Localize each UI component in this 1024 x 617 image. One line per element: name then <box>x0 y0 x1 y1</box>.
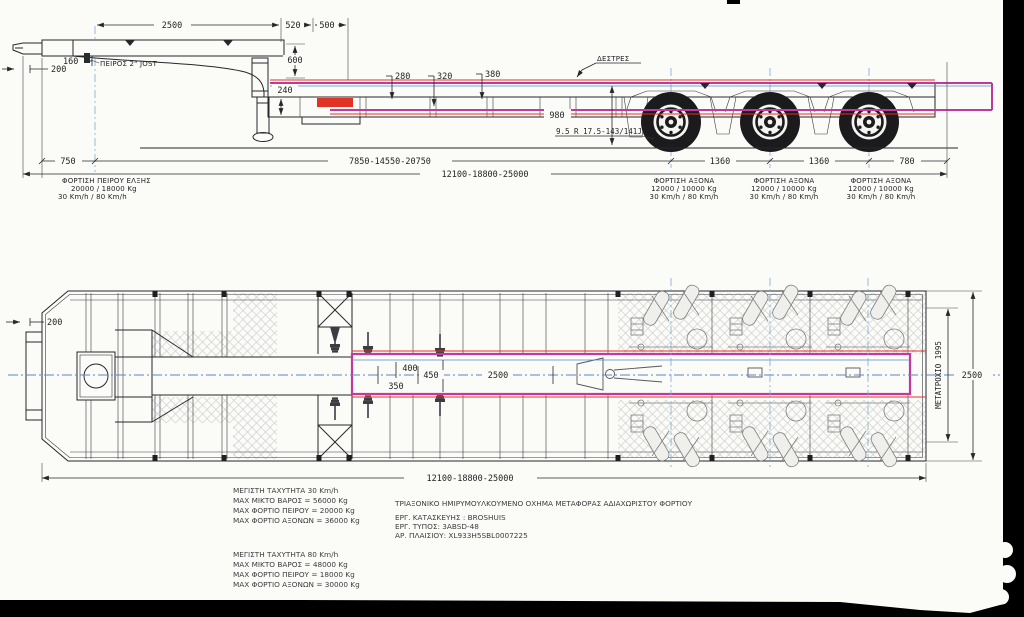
dim-axle-spacing-2: 1360 <box>809 157 829 167</box>
tire-size-label: 9.5 R 17.5-143/141J <box>556 127 642 136</box>
spec-line: ΜΕΓΙΣΤΗ ΤΑΧΥΤΗΤΑ 80 Km/h <box>233 550 338 559</box>
axle-load-block-1: ΦΟΡΤΙΣΗ ΑΞΟΝΑ 12000 / 10000 Kg 30 Km/h /… <box>650 177 719 201</box>
deck-step-dimensions: 280 320 380 <box>386 70 500 106</box>
side-view: 2500 520 500 600 240 160 200 ΠΕΙΡΟΣ 2" J… <box>2 18 992 201</box>
wheel-1 <box>641 92 701 152</box>
axle-load-title: ΦΟΡΤΙΣΗ ΑΞΟΝΑ <box>654 177 715 185</box>
dim-320: 320 <box>437 72 452 82</box>
spec-line: MAX ΦΟΡΤΙΟ ΠΕΙΡΟΥ = 18000 Kg <box>233 570 355 579</box>
axle-load-block-3: ΦΟΡΤΙΣΗ ΑΞΟΝΑ 12000 / 10000 Kg 30 Km/h /… <box>847 177 916 201</box>
spec-line: MAX ΦΟΡΤΙΟ ΑΞΟΝΩΝ = 36000 Kg <box>233 516 360 525</box>
axle-load-speeds: 30 Km/h / 80 Km/h <box>650 193 719 201</box>
spec-line: MAX ΜΙΚΤΟ ΒΑΡΟΣ = 56000 Kg <box>233 496 348 505</box>
lashing-label: ΔΕΣΤΡΕΣ <box>597 55 629 63</box>
front-coupling-box <box>26 332 42 420</box>
side-misc-labels: 980 9.5 R 17.5-143/141J ΔΕΣΤΡΕΣ <box>544 55 654 145</box>
dim-350: 350 <box>388 382 403 392</box>
technical-drawing-svg: 2500 520 500 600 240 160 200 ΠΕΙΡΟΣ 2" J… <box>0 0 1024 617</box>
wheel-2 <box>740 92 800 152</box>
dim-240: 240 <box>277 86 292 96</box>
vehicle-id-block: ΤΡΙΑΞΟΝΙΚΟ ΗΜΙΡΥΜΟΥΛΚΟΥΜΕΝΟ ΟΧΗΜΑ ΜΕΤΑΦΟ… <box>394 499 693 540</box>
steering-linkage <box>577 358 860 390</box>
spec-block-80kmh: ΜΕΓΙΣΤΗ ΤΑΧΥΤΗΤΑ 80 Km/h MAX ΜΙΚΤΟ ΒΑΡΟΣ… <box>233 550 360 589</box>
dim-200-side: 200 <box>51 65 66 75</box>
axle-load-values: 12000 / 10000 Kg <box>751 185 817 193</box>
spec-line: ΜΕΓΙΣΤΗ ΤΑΧΥΤΗΤΑ 30 Km/h <box>233 486 338 495</box>
support-pad <box>363 395 373 418</box>
pin-load-values: 20000 / 18000 Kg <box>71 185 137 193</box>
dim-500: 500 <box>319 21 334 31</box>
axle-load-values: 12000 / 10000 Kg <box>848 185 914 193</box>
dim-200-plan: 200 <box>47 318 62 328</box>
axle-load-title: ΦΟΡΤΙΣΗ ΑΞΟΝΑ <box>754 177 815 185</box>
axle-load-block-2: ΦΟΡΤΙΣΗ ΑΞΟΝΑ 12000 / 10000 Kg 30 Km/h /… <box>750 177 819 201</box>
dim-2500-channel: 2500 <box>488 371 508 381</box>
axle-load-speeds: 30 Km/h / 80 Km/h <box>750 193 819 201</box>
pin-load-speeds: 30 Km/h / 80 Km/h <box>58 193 127 201</box>
dim-rear-overhang: 780 <box>899 157 914 167</box>
dim-width-2500: 2500 <box>962 371 982 381</box>
dim-750: 750 <box>60 157 75 167</box>
dim-380: 380 <box>485 70 500 80</box>
deck-beam <box>268 83 935 124</box>
wheel-3 <box>839 92 899 152</box>
red-marker-block <box>317 98 353 107</box>
kingpin-label: ΠΕΙΡΟΣ 2" JOST <box>100 60 158 68</box>
dim-overall-side: 12100-18800-25000 <box>442 170 529 180</box>
dim-overall-plan: 12100-18800-25000 <box>427 474 514 484</box>
scan-edge-bottom <box>0 600 1024 617</box>
support-pad <box>330 397 340 420</box>
spec-line: MAX ΦΟΡΤΙΟ ΠΕΙΡΟΥ = 20000 Kg <box>233 506 355 515</box>
dim-980: 980 <box>549 111 564 121</box>
dim-400: 400 <box>402 364 417 374</box>
scan-edge-right <box>1003 0 1024 617</box>
axle-load-title: ΦΟΡΤΙΣΗ ΑΞΟΝΑ <box>851 177 912 185</box>
scanned-trailer-drawing: 2500 520 500 600 240 160 200 ΠΕΙΡΟΣ 2" J… <box>0 0 1024 617</box>
pin-load-block: ΦΟΡΤΙΣΗ ΠΕΙΡΟΥ ΕΛΞΗΣ 20000 / 18000 Kg 30… <box>58 177 151 201</box>
spec-block-30kmh: ΜΕΓΙΣΤΗ ΤΑΧΥΤΗΤΑ 30 Km/h MAX ΜΙΚΤΟ ΒΑΡΟΣ… <box>233 486 360 525</box>
support-pad <box>330 330 340 353</box>
wheels-side <box>641 92 899 152</box>
dim-520: 520 <box>285 21 300 31</box>
spec-line: MAX ΜΙΚΤΟ ΒΑΡΟΣ = 48000 Kg <box>233 560 348 569</box>
dim-pin-to-axle: 7850-14550-20750 <box>349 157 431 167</box>
dim-280: 280 <box>395 72 410 82</box>
axle-load-speeds: 30 Km/h / 80 Km/h <box>847 193 916 201</box>
spec-line: MAX ΦΟΡΤΙΟ ΑΞΟΝΩΝ = 30000 Kg <box>233 580 360 589</box>
dim-600: 600 <box>287 56 302 66</box>
type: ΕΡΓ. ΤΥΠΟΣ: 3ABSD-48 <box>395 522 479 531</box>
plan-view: 200 400 450 350 2500 12100-18800-25000 Μ… <box>6 278 1000 484</box>
dim-2500: 2500 <box>162 21 182 31</box>
kingpin-plate <box>77 352 115 400</box>
kingpin-2in <box>84 53 90 63</box>
dim-track: ΜΕΤΑΤΡΟΧΙΟ 1995 <box>934 341 943 409</box>
landing-leg <box>253 97 273 142</box>
manufacturer: ΕΡΓ. ΚΑΤΑΣΚΕΥΗΣ : BROSHUIS <box>395 513 506 522</box>
chassis-number: ΑΡ. ΠΛΑΙΣΙΟΥ: XL933H5SBL0007225 <box>395 531 528 540</box>
vehicle-description: ΤΡΙΑΞΟΝΙΚΟ ΗΜΙΡΥΜΟΥΛΚΟΥΜΕΝΟ ΟΧΗΜΑ ΜΕΤΑΦΟ… <box>394 499 693 508</box>
pin-load-title: ΦΟΡΤΙΣΗ ΠΕΙΡΟΥ ΕΛΞΗΣ <box>62 177 151 185</box>
axle-load-values: 12000 / 10000 Kg <box>651 185 717 193</box>
dim-axle-spacing-1: 1360 <box>710 157 730 167</box>
dim-450: 450 <box>423 371 438 381</box>
side-top-dimensions: 2500 520 500 600 240 160 200 ΠΕΙΡΟΣ 2" J… <box>2 18 348 115</box>
